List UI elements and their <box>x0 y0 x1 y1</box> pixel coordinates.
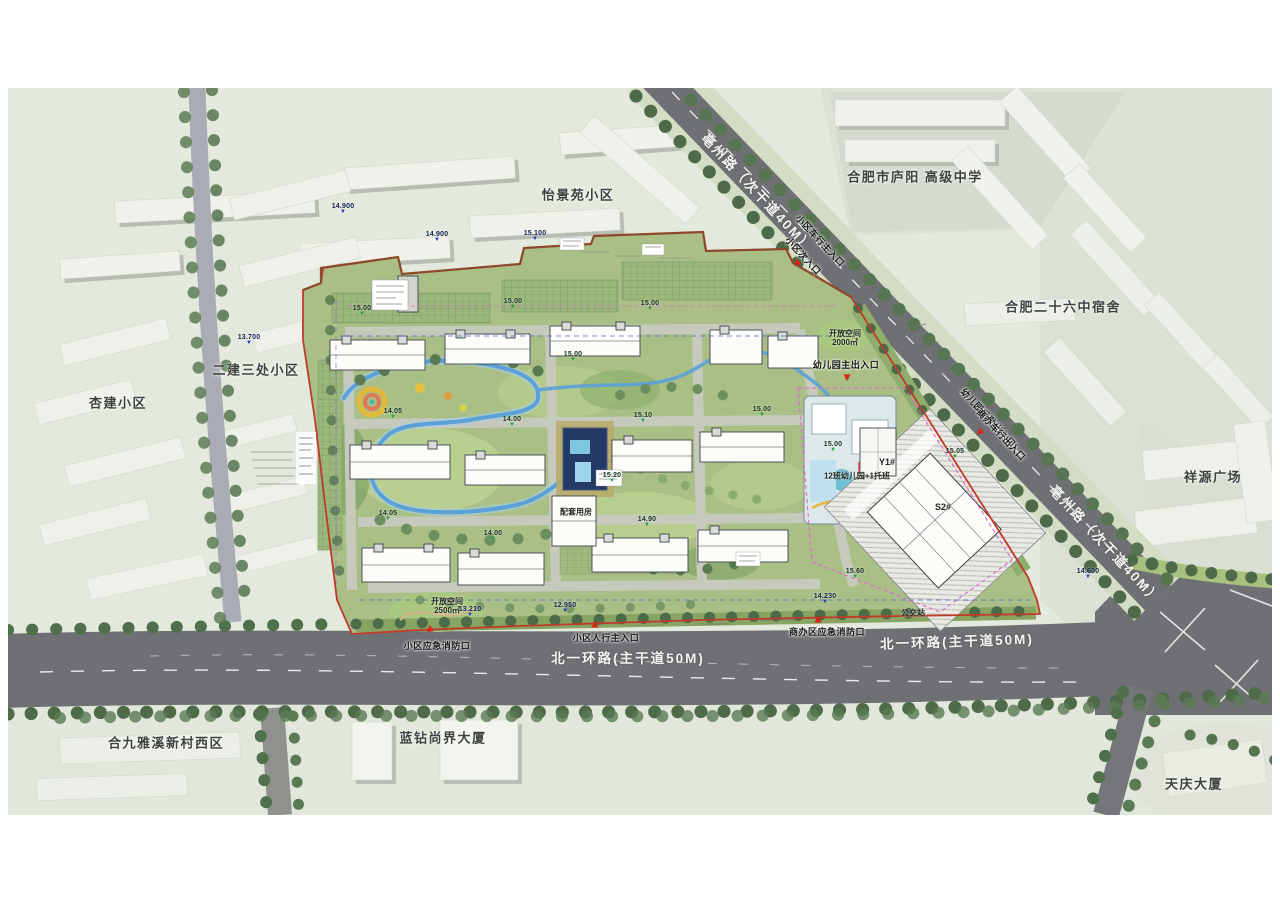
residential-building <box>592 534 688 572</box>
site-plan-screenshot: 怡景苑小区合肥市庐阳 高级中学合肥二十六中宿舍祥源广场二建三处小区杏建小区合九雅… <box>0 0 1280 905</box>
residential-building <box>768 332 818 368</box>
residential-building <box>465 451 545 485</box>
residential-building <box>700 428 784 462</box>
residential-building <box>550 322 640 356</box>
site-plan-map <box>0 0 1280 905</box>
amenity-building <box>552 496 596 546</box>
residential-building <box>362 544 450 582</box>
residential-building <box>330 336 425 370</box>
y1-tower <box>860 428 896 476</box>
residential-building <box>350 441 450 479</box>
residential-building <box>445 330 530 364</box>
residential-building <box>710 326 762 364</box>
residential-building <box>458 549 544 585</box>
residential-building <box>612 436 692 472</box>
